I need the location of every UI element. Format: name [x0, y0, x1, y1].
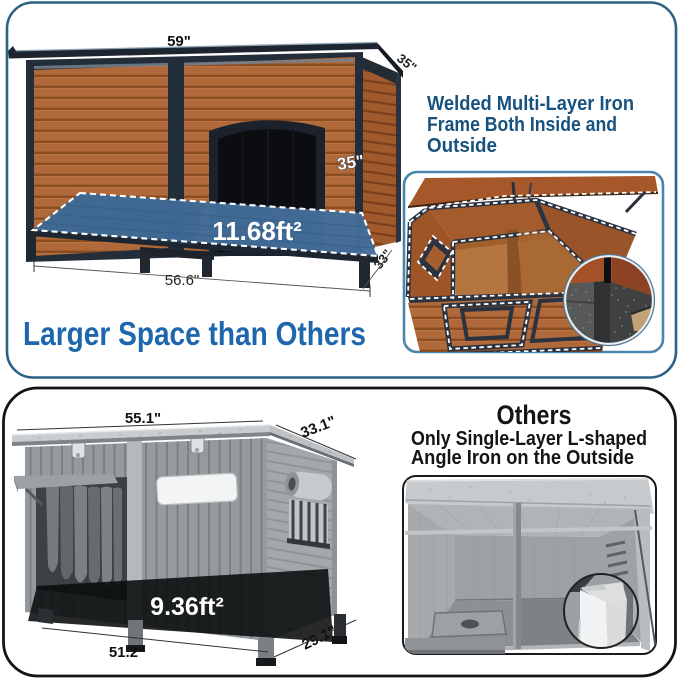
- svg-text:Outside: Outside: [427, 135, 497, 157]
- svg-text:Others: Others: [497, 400, 572, 430]
- svg-text:Angle Iron on the Outside: Angle Iron on the Outside: [411, 447, 634, 469]
- svg-text:Welded Multi-Layer Iron: Welded Multi-Layer Iron: [427, 93, 634, 115]
- svg-text:59": 59": [167, 33, 191, 50]
- svg-text:Frame Both Inside and: Frame Both Inside and: [427, 114, 617, 136]
- svg-text:51.2": 51.2": [109, 644, 145, 661]
- svg-text:11.68ft²: 11.68ft²: [212, 216, 302, 246]
- svg-text:Larger Space than Others: Larger Space than Others: [23, 315, 366, 352]
- svg-text:56.6": 56.6": [165, 272, 200, 289]
- svg-text:9.36ft²: 9.36ft²: [150, 593, 224, 621]
- svg-text:35": 35": [336, 151, 365, 174]
